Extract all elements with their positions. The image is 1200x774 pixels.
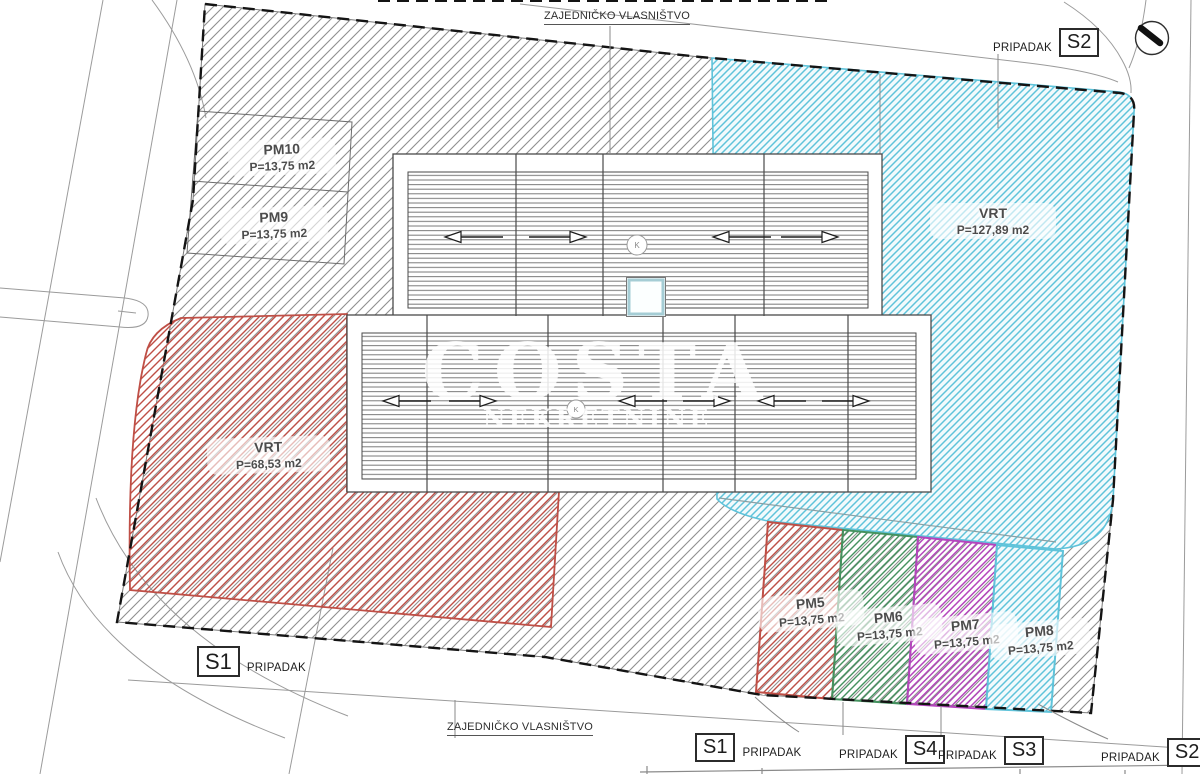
pripadak-label: PRIPADAK — [938, 750, 997, 762]
garden-label-vrt-right: VRT P=127,89 m2 — [930, 203, 1056, 239]
unit-badge-s3-bottom: S3 — [1004, 736, 1044, 765]
parcel-area: P=13,75 m2 — [232, 157, 332, 175]
pripadak-label: PRIPADAK — [247, 662, 306, 674]
unit-badge-s1-bottom: S1 — [695, 733, 735, 762]
parcel-area: P=68,53 m2 — [211, 454, 326, 472]
ownership-tag-s2-bottom: PRIPADAK S2 — [1101, 738, 1200, 767]
pripadak-label: PRIPADAK — [839, 749, 898, 761]
costa-watermark-line2: NEKRETNINE — [437, 406, 757, 431]
parcel-name: VRT — [934, 205, 1052, 223]
survey-marker — [1136, 22, 1169, 55]
ownership-tag-s1-left: S1 PRIPADAK — [197, 646, 306, 677]
unit-badge-s2-top: S2 — [1059, 28, 1099, 57]
skylight — [627, 278, 666, 317]
ownership-tag-s1-bottom: S1 PRIPADAK — [695, 733, 801, 762]
pripadak-label: PRIPADAK — [993, 42, 1052, 54]
roof-vent-mark-upper: K — [634, 241, 640, 250]
site-plan: K K COSTA NEKRETNINE ZAJEDNIČKO VLASNIŠT… — [0, 0, 1200, 774]
unit-badge-s1-left: S1 — [197, 646, 240, 677]
ownership-tag-s2-top: PRIPADAK S2 — [993, 28, 1099, 57]
pripadak-label: PRIPADAK — [1101, 752, 1160, 764]
parcel-area: P=127,89 m2 — [934, 223, 1052, 237]
parking-label-pm9: PM9 P=13,75 m2 — [219, 205, 328, 245]
parcel-area: P=13,75 m2 — [224, 225, 324, 243]
roof-vent-circle-upper: K — [627, 235, 647, 255]
pripadak-label: PRIPADAK — [742, 747, 801, 759]
costa-watermark-line1: COSTA — [397, 334, 797, 412]
common-ownership-label-bottom: ZAJEDNIČKO VLASNIŠTVO — [447, 721, 593, 736]
ownership-tag-s4-bottom: PRIPADAK S4 — [839, 735, 945, 764]
common-ownership-label-top: ZAJEDNIČKO VLASNIŠTVO — [544, 10, 690, 25]
ownership-tag-s3-bottom: PRIPADAK S3 — [938, 736, 1044, 765]
parking-label-pm10: PM10 P=13,75 m2 — [227, 137, 336, 177]
garden-label-vrt-left: VRT P=68,53 m2 — [206, 435, 330, 475]
unit-badge-s2-bottom: S2 — [1167, 738, 1200, 767]
